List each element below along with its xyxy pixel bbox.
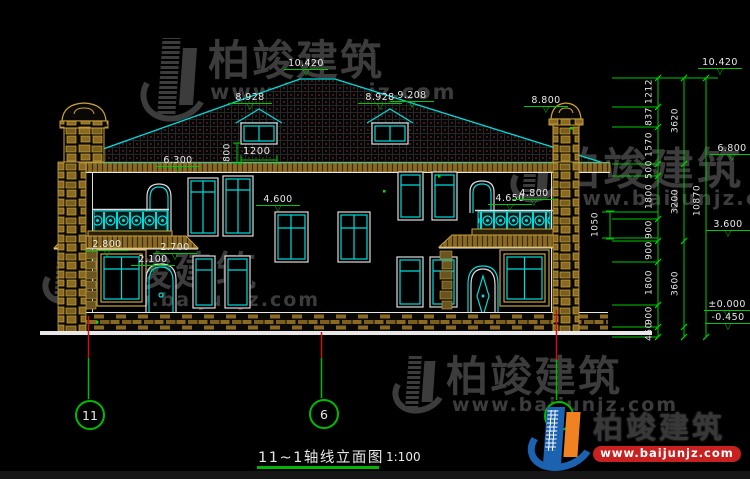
dim-dormer-width: 1200	[243, 146, 270, 157]
elev-triangle-icon: ▽	[725, 230, 732, 238]
balcony-left	[88, 210, 172, 239]
elev-triangle-icon: ▽	[729, 154, 736, 162]
elev-marker-stair-window: 4.600 ▽	[256, 194, 300, 213]
elev-triangle-icon: ▽	[303, 69, 310, 77]
window	[188, 178, 218, 236]
drawing-canvas: 柏竣建筑 www.baijunjz.com 柏竣建筑 www.baijunjz.…	[0, 0, 750, 479]
footer-url: www.baijunjz.com	[600, 448, 733, 460]
base-band	[58, 313, 608, 333]
elev-marker-balcony-right-b: 4.800 ▽	[512, 188, 556, 207]
elev-triangle-icon: ▽	[247, 103, 254, 111]
hip-roof	[58, 79, 610, 165]
bay-window-right	[500, 250, 549, 306]
axis-bubble-6: 6	[309, 399, 339, 429]
footer-logo: 柏竣建筑 www.baijunjz.com	[527, 405, 750, 471]
chain-segment: 450	[645, 314, 656, 350]
axis-label: 6	[320, 407, 328, 422]
elev-marker-right-ground: -0.450 ▽	[705, 312, 750, 331]
axis-bubble-11: 11	[75, 400, 105, 430]
elev-marker-entry-left: 2.100 ▽	[131, 254, 175, 273]
window	[338, 212, 370, 262]
drawing-title: 11~1轴线立面图	[258, 446, 384, 467]
elev-triangle-icon: ▽	[275, 205, 282, 213]
dim-dormer-sill: 800	[223, 135, 234, 171]
window	[432, 172, 457, 220]
elev-triangle-icon: ▽	[104, 250, 111, 258]
window	[398, 172, 423, 220]
elev-marker-dormer-left: 8.928 ▽	[228, 92, 272, 111]
elev-triangle-icon: ▽	[175, 166, 182, 174]
footer-url-banner: www.baijunjz.com	[593, 446, 741, 462]
window	[193, 256, 215, 308]
chain-segment: 1800	[645, 265, 656, 301]
chain-segment: 1800	[645, 179, 656, 215]
axis-label: 11	[82, 408, 98, 423]
elev-triangle-icon: ▽	[377, 103, 384, 111]
chimney-right	[549, 103, 583, 332]
elev-marker-roof-right: 9.208 ▽	[390, 90, 434, 109]
elev-marker-eave-left: 6.300 ▽	[156, 155, 200, 174]
chain-total: 10870	[693, 183, 704, 219]
dim-balcony-rail: 1050	[591, 207, 602, 243]
window	[225, 256, 250, 308]
elev-triangle-icon: ▽	[725, 323, 732, 331]
title-underline	[257, 466, 379, 469]
drawing-scale: 1:100	[386, 450, 421, 464]
balcony-right	[472, 211, 558, 236]
elev-marker-right-floor: 3.600 ▽	[706, 219, 750, 238]
chain-subtotal: 3200	[671, 184, 682, 220]
elev-triangle-icon: ▽	[409, 101, 416, 109]
chain-subtotal: 3620	[671, 103, 682, 139]
window	[223, 176, 253, 236]
elev-triangle-icon: ▽	[531, 199, 538, 207]
elev-marker-right-top: 10.420 ▽	[698, 57, 742, 76]
elev-triangle-icon: ▽	[717, 68, 724, 76]
eave-band	[58, 163, 610, 173]
ground-line	[40, 331, 652, 335]
upper-windows	[188, 172, 457, 262]
window	[397, 257, 423, 307]
elev-marker-ridge: 10.420 ▽	[284, 58, 328, 77]
elev-marker-right-eave: 6.800 ▽	[710, 143, 750, 162]
window	[275, 212, 308, 262]
footer-strip	[0, 471, 750, 479]
chain-segment: 900	[645, 233, 656, 269]
elev-triangle-icon: ▽	[543, 106, 550, 114]
elev-marker-chimney-right: 8.800 ▽	[524, 95, 568, 114]
chain-subtotal: 3600	[671, 266, 682, 302]
elev-marker-porch-left-a: 2.800 ▽	[85, 239, 129, 258]
footer-brand: 柏竣建筑	[593, 414, 725, 444]
elev-triangle-icon: ▽	[150, 265, 157, 273]
footer-logo-icon	[527, 407, 587, 471]
